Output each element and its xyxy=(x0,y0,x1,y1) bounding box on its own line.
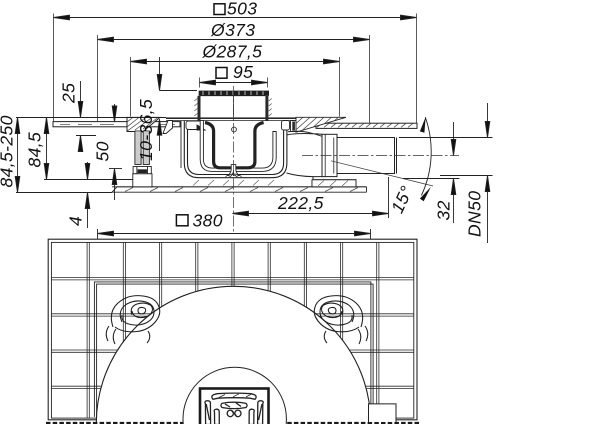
svg-text:32: 32 xyxy=(434,200,454,220)
svg-text:4: 4 xyxy=(66,216,86,226)
svg-text:50: 50 xyxy=(93,141,113,161)
svg-text:25: 25 xyxy=(59,83,79,104)
svg-text:380: 380 xyxy=(193,210,223,230)
svg-text:DN50: DN50 xyxy=(465,191,485,237)
svg-text:84,5: 84,5 xyxy=(25,132,45,168)
svg-text:95: 95 xyxy=(233,62,253,82)
svg-text:Ø287,5: Ø287,5 xyxy=(202,42,263,62)
svg-text:10-36,5: 10-36,5 xyxy=(136,99,156,161)
svg-text:503: 503 xyxy=(227,0,257,19)
svg-text:222,5: 222,5 xyxy=(277,193,324,213)
svg-text:84,5-250: 84,5-250 xyxy=(0,115,17,187)
svg-text:Ø373: Ø373 xyxy=(210,20,255,40)
